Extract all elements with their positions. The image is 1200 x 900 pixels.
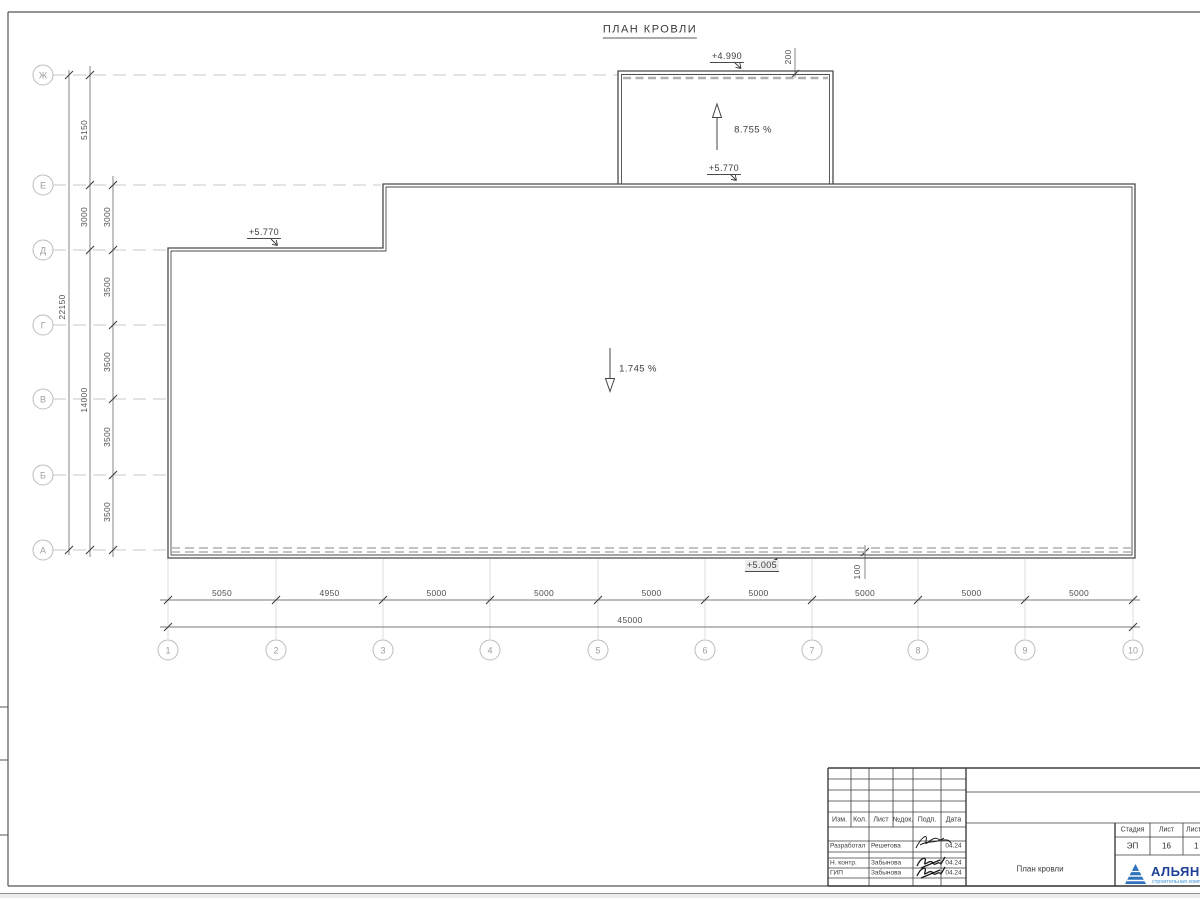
row-axis-bubble-Е: Е: [33, 175, 54, 196]
stamp-header-list: Лист: [873, 817, 888, 824]
col-axis-bubble-10: 10: [1123, 640, 1144, 661]
row-axis-bubble-Д: Д: [33, 240, 54, 261]
stamp-header-ndok: №док.: [893, 817, 914, 824]
stamp-role-ncontr: Н. контр.: [830, 860, 857, 867]
stamp-name-ncontr: Забынова: [871, 860, 901, 867]
axis-grid-dashed-lines: [53, 75, 618, 550]
stamp-role-gip: ГИП: [830, 870, 843, 877]
stamp-name-gip: Забынова: [871, 870, 901, 877]
stamp-header-izm: Изм.: [832, 817, 847, 824]
dimension-label: 3500: [102, 502, 112, 522]
col-axis-bubble-3: 3: [373, 640, 394, 661]
col-axis-bubble-7: 7: [802, 640, 823, 661]
dimension-label: 5000: [855, 588, 875, 598]
col-axis-bubble-6: 6: [695, 640, 716, 661]
stamp-stage-label: Стадия: [1121, 827, 1145, 834]
row-axis-bubble-Б: Б: [33, 465, 54, 486]
page-title: ПЛАН КРОВЛИ: [603, 24, 697, 39]
dimension-label: 3000: [102, 207, 112, 227]
stamp-date-developer: 04.24: [945, 843, 961, 850]
stamp-stage-value: ЭП: [1127, 842, 1139, 851]
stamp-sheet-label: Лист: [1159, 827, 1174, 834]
stamp-drawing-title: План кровли: [1016, 865, 1063, 874]
slope-arrow-down: [606, 348, 615, 392]
parapet-bottom-dimension: 100: [852, 564, 862, 579]
dimension-label: 3000: [79, 207, 89, 227]
stamp-date-ncontr: 04.24: [945, 860, 961, 867]
elevation-mark-bottom: +5.005: [745, 560, 779, 572]
dimension-label: 22150: [57, 294, 67, 319]
stamp-sheet-value: 16: [1162, 842, 1171, 851]
stamp-sheets-value: 1: [1194, 842, 1198, 851]
tick-marks: [65, 70, 1137, 631]
logo-company-name: АЛЬЯНС: [1151, 864, 1200, 879]
stamp-header-data: Дата: [946, 817, 962, 824]
elevation-mark-left: +5.770: [247, 227, 281, 239]
dimension-label: 5000: [748, 588, 768, 598]
dimension-label: 5000: [1069, 588, 1089, 598]
parapet-top-dimension: 200: [783, 49, 793, 64]
paper-edge: [0, 893, 1200, 898]
leader-arrows: [271, 62, 777, 567]
dimension-label: 4950: [319, 588, 339, 598]
stamp-name-developer: Решетова: [871, 843, 901, 850]
col-axis-bubble-1: 1: [158, 640, 179, 661]
dimension-label: 5000: [534, 588, 554, 598]
logo-company-subtitle: строительная компания: [1152, 879, 1200, 885]
row-axis-bubble-Ж: Ж: [33, 65, 54, 86]
dimension-label: 3500: [102, 427, 112, 447]
col-axis-bubble-2: 2: [266, 640, 287, 661]
dimension-label: 3500: [102, 352, 112, 372]
dimension-label: 5150: [79, 120, 89, 140]
elevation-mark-top: +4.990: [710, 51, 744, 63]
parapet-dashed-lines: [171, 78, 1132, 552]
dimension-label: 5000: [426, 588, 446, 598]
stamp-header-podp: Подп.: [918, 817, 937, 824]
logo-triangle-icon: [1125, 864, 1146, 884]
slope-arrow-up: [713, 104, 722, 150]
slope-label-upper: 8.755 %: [734, 125, 772, 136]
slope-label-main: 1.745 %: [619, 364, 657, 375]
dimension-lines: [69, 48, 1140, 627]
dimension-label: 14000: [79, 387, 89, 412]
row-axis-bubble-В: В: [33, 389, 54, 410]
sheet-frame: [0, 12, 1200, 886]
row-axis-bubble-Г: Г: [33, 315, 54, 336]
stamp-date-gip: 04.24: [945, 870, 961, 877]
dimension-label: 5000: [641, 588, 661, 598]
row-axis-bubble-А: А: [33, 540, 54, 561]
stamp-role-developer: Разработал: [830, 843, 865, 850]
dimension-label: 45000: [617, 615, 642, 625]
col-axis-bubble-5: 5: [588, 640, 609, 661]
dimension-label: 5000: [961, 588, 981, 598]
col-axis-bubble-4: 4: [480, 640, 501, 661]
col-axis-bubble-9: 9: [1015, 640, 1036, 661]
col-axis-bubble-8: 8: [908, 640, 929, 661]
stamp-sheets-label: Листов: [1186, 827, 1200, 834]
stamp-header-kol: Кол.: [853, 817, 867, 824]
elevation-mark-upper-base: +5.770: [707, 163, 741, 175]
roof-plan-drawing: [0, 0, 1200, 900]
dimension-label: 3500: [102, 277, 112, 297]
dimension-label: 5050: [212, 588, 232, 598]
